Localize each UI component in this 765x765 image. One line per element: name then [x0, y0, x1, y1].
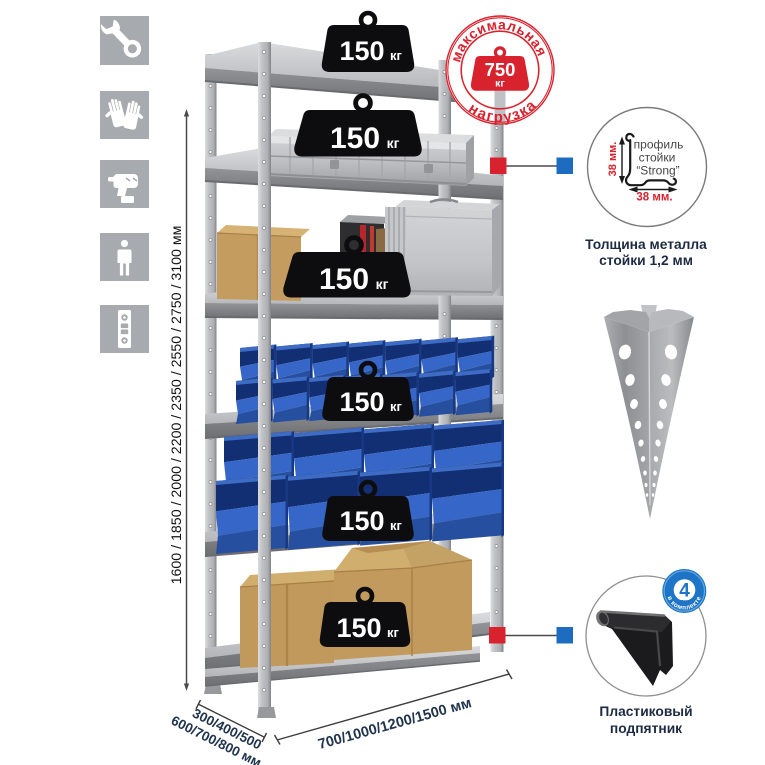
svg-text:кг: кг: [390, 399, 403, 414]
svg-text:700/1000/1200/1500 мм: 700/1000/1200/1500 мм: [316, 695, 473, 753]
svg-text:150: 150: [319, 263, 369, 296]
svg-text:38 мм.: 38 мм.: [607, 142, 619, 177]
svg-text:“Strong”: “Strong”: [636, 164, 679, 178]
svg-text:кг: кг: [390, 518, 403, 533]
svg-text:кг: кг: [495, 78, 505, 90]
svg-text:Пластиковый: Пластиковый: [599, 704, 692, 719]
svg-text:штуки: штуки: [678, 599, 692, 604]
svg-text:Толщина металла: Толщина металла: [585, 237, 707, 252]
svg-text:кг: кг: [376, 276, 389, 292]
svg-text:стойки: стойки: [639, 151, 676, 165]
svg-text:кг: кг: [387, 135, 400, 151]
svg-text:подпятник: подпятник: [610, 721, 682, 736]
svg-text:1600 / 1850 / 2000 / 2200 / 23: 1600 / 1850 / 2000 / 2200 / 2350 / 2550 …: [169, 226, 185, 585]
svg-text:150: 150: [330, 122, 380, 155]
svg-text:профиль: профиль: [634, 138, 684, 152]
svg-text:кг: кг: [387, 625, 400, 640]
svg-text:150: 150: [336, 613, 381, 643]
svg-text:150: 150: [339, 506, 384, 536]
svg-text:38 мм.: 38 мм.: [636, 192, 672, 204]
svg-text:150: 150: [339, 36, 384, 66]
svg-text:стойки 1,2 мм: стойки 1,2 мм: [599, 253, 693, 268]
svg-text:кг: кг: [390, 48, 403, 63]
svg-text:150: 150: [339, 387, 384, 417]
